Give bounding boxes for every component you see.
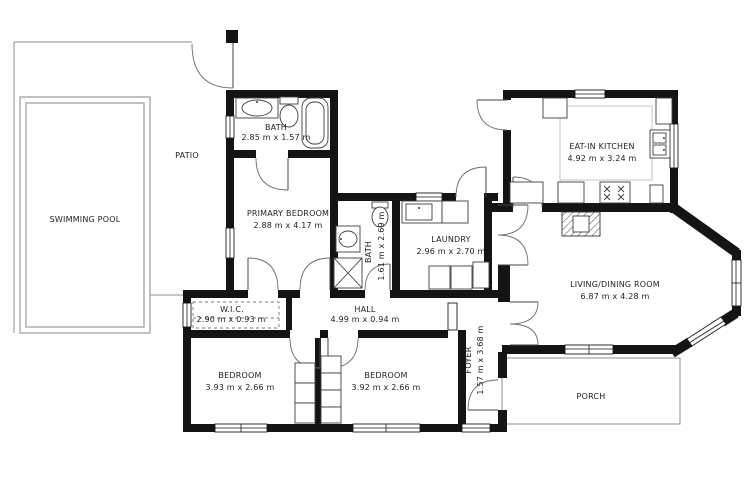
foyer-living-double-door — [510, 302, 538, 345]
kitchen-counter — [543, 98, 567, 118]
sink-icon — [236, 98, 278, 118]
patio-boundary — [14, 42, 192, 333]
kitchen-counter — [558, 182, 584, 203]
svg-text:LIVING/DINING ROOM: LIVING/DINING ROOM — [570, 280, 660, 289]
kitchen-patio-door — [477, 100, 507, 130]
window-foyer — [462, 424, 490, 432]
bath-top-door — [256, 158, 288, 190]
window-wic — [183, 303, 191, 327]
svg-text:BATH: BATH — [364, 241, 373, 263]
svg-text:PRIMARY BEDROOM: PRIMARY BEDROOM — [247, 209, 329, 218]
svg-text:2.96 m x 2.70 m: 2.96 m x 2.70 m — [416, 247, 485, 256]
svg-text:2.85 m x 1.57 m: 2.85 m x 1.57 m — [241, 133, 310, 142]
primary-door-left — [248, 258, 278, 290]
living-double-door — [498, 205, 528, 265]
label-hall: HALL 4.99 m x 0.94 m — [330, 305, 399, 324]
svg-text:6.87 m x 4.28 m: 6.87 m x 4.28 m — [580, 292, 649, 301]
window-bay-angled — [687, 317, 726, 346]
svg-text:LAUNDRY: LAUNDRY — [431, 235, 470, 244]
washer-icon — [429, 266, 450, 289]
window-kitchen-right — [670, 124, 678, 168]
svg-text:3.93 m x 2.66 m: 3.93 m x 2.66 m — [205, 383, 274, 392]
floor-plan-svg: PATIO SWIMMING POOL BATH 2.85 m x 1.57 m… — [0, 0, 755, 481]
porch-outline — [502, 358, 680, 424]
svg-text:BEDROOM: BEDROOM — [364, 371, 407, 380]
patio-gate-door — [192, 43, 233, 88]
label-foyer: FOYER 1.57 m x 3.68 m — [464, 325, 485, 394]
floor-plan: PATIO SWIMMING POOL BATH 2.85 m x 1.57 m… — [0, 0, 755, 481]
label-wic: W.I.C. 2.90 m x 0.93 m — [196, 305, 265, 324]
svg-text:2.90 m x 0.93 m: 2.90 m x 0.93 m — [196, 315, 265, 324]
svg-text:BATH: BATH — [265, 123, 287, 132]
label-bath-top: BATH 2.85 m x 1.57 m — [241, 123, 310, 142]
label-laundry: LAUNDRY 2.96 m x 2.70 m — [416, 235, 485, 256]
window-living-bottom — [565, 345, 613, 354]
svg-text:HALL: HALL — [354, 305, 376, 314]
kitchen-cabinet — [656, 98, 672, 124]
label-patio: PATIO — [175, 151, 199, 160]
label-bedroom-right: BEDROOM 3.92 m x 2.66 m — [351, 371, 420, 392]
label-porch: PORCH — [577, 392, 606, 401]
primary-door-right — [300, 258, 330, 290]
window-kitchen-top — [575, 90, 605, 98]
window-laundry — [416, 193, 442, 201]
svg-text:FOYER: FOYER — [464, 346, 473, 373]
kitchen-counter — [650, 185, 663, 203]
laundry-sink-icon — [402, 201, 468, 223]
cabinet-icon — [473, 262, 489, 288]
kitchen-counter — [510, 182, 543, 203]
window-bay-right — [732, 260, 741, 306]
dryer-icon — [451, 266, 472, 289]
label-bedroom-left: BEDROOM 3.93 m x 2.66 m — [205, 371, 274, 392]
kitchen-sink-icon — [650, 130, 670, 158]
svg-text:1.57 m x 3.68 m: 1.57 m x 3.68 m — [476, 325, 485, 394]
svg-text:BEDROOM: BEDROOM — [218, 371, 261, 380]
window-primary-bedroom — [226, 228, 234, 258]
svg-text:4.99 m x 0.94 m: 4.99 m x 0.94 m — [330, 315, 399, 324]
shower-icon — [334, 258, 362, 288]
sink-icon — [336, 226, 360, 252]
window-bedroom-right — [353, 424, 420, 432]
fireplace-icon — [562, 212, 600, 236]
opening-hall-foyer — [448, 303, 457, 330]
laundry-door — [456, 167, 486, 197]
window-bedroom-left — [215, 424, 267, 432]
svg-text:2.88 m x 4.17 m: 2.88 m x 4.17 m — [253, 221, 322, 230]
label-primary-bedroom: PRIMARY BEDROOM 2.88 m x 4.17 m — [247, 209, 329, 230]
stove-icon — [600, 182, 630, 203]
label-pool: SWIMMING POOL — [50, 215, 121, 224]
svg-text:W.I.C.: W.I.C. — [220, 305, 244, 314]
label-living: LIVING/DINING ROOM 6.87 m x 4.28 m — [570, 280, 660, 301]
svg-text:EAT-IN KITCHEN: EAT-IN KITCHEN — [569, 142, 634, 151]
svg-text:1.61 m x 2.69 m: 1.61 m x 2.69 m — [377, 211, 386, 280]
window-bath-top — [226, 116, 234, 138]
svg-text:4.92 m x 3.24 m: 4.92 m x 3.24 m — [567, 154, 636, 163]
label-kitchen: EAT-IN KITCHEN 4.92 m x 3.24 m — [567, 142, 636, 163]
svg-text:3.92 m x 2.66 m: 3.92 m x 2.66 m — [351, 383, 420, 392]
